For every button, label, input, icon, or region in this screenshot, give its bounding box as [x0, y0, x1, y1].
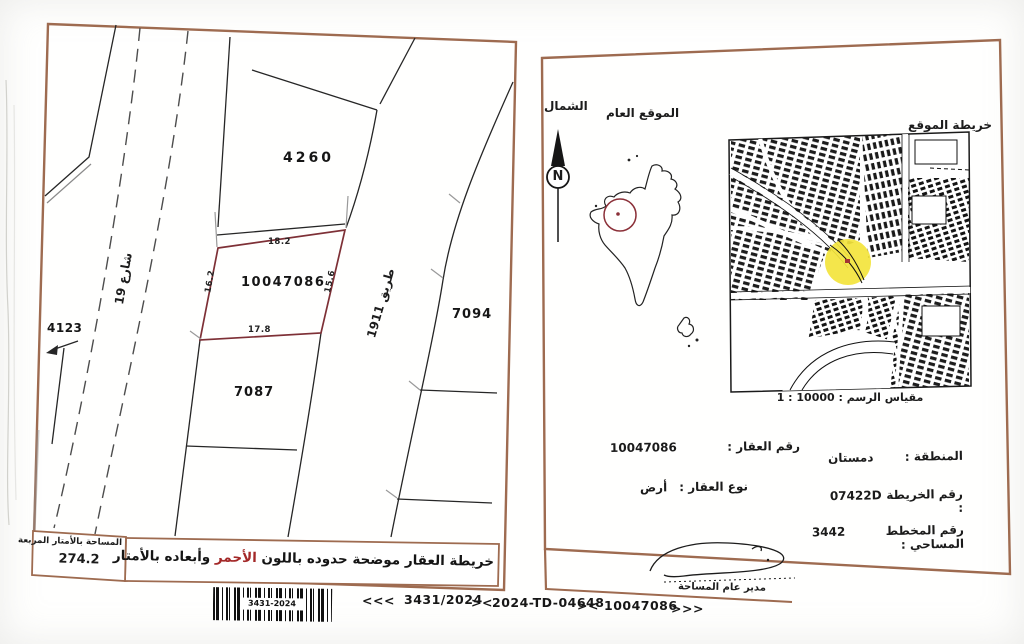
signature-title: مدير عام المساحة [662, 581, 782, 594]
parcel-label-4123: 4123 [47, 322, 82, 335]
area-box-value: 274.2 [36, 552, 122, 569]
north-arrow-icon [547, 129, 569, 242]
map-note-suffix: وأبعاده بالأمتار [113, 548, 211, 566]
bahrain-outline-map [590, 155, 698, 347]
plot-map-panel [32, 24, 516, 590]
map-number-row: رقم الخريطة : 07422D [830, 487, 963, 517]
footer-seg-sep-1: >< [471, 595, 493, 610]
map-number-label: رقم الخريطة : [881, 487, 963, 516]
region-value: دمستان [828, 450, 874, 465]
footer-seg-arrows-left: <<< [362, 593, 395, 608]
general-location-label: الموقع العام [606, 107, 679, 120]
site-map [729, 130, 971, 392]
parcel-4123-arrowhead [46, 345, 58, 355]
region-row: المنطقة : دمستان [828, 449, 963, 465]
map-number-value: 07422D [830, 488, 882, 517]
scale-label: مقياس الرسم : 10000 : 1 [762, 392, 938, 404]
parcel-label-7094: 7094 [452, 308, 492, 322]
property-number-value: 10047086 [610, 440, 677, 455]
compass-letter: N [548, 170, 568, 184]
location-marker-circle [604, 199, 636, 231]
property-type-label: نوع العقار : [679, 479, 748, 494]
scanned-survey-document: 4260 10047086 7094 7087 4123 شارع 19 طري… [0, 0, 1024, 644]
region-label: المنطقة : [905, 449, 963, 464]
barcode-label: 3431-2024 [240, 598, 304, 611]
dimension-bottom: 17.8 [248, 326, 271, 335]
property-number-label: رقم العقار : [727, 439, 800, 454]
plan-number-row: رقم المخطط المساحي : 3442 [812, 523, 964, 554]
scan-artifacts [6, 80, 16, 525]
north-label: الشمال [544, 100, 588, 113]
dimension-top: 18.2 [268, 238, 291, 247]
plan-number-label: رقم المخطط المساحي : [845, 523, 964, 553]
footer-seg-arrows-right: >>> [671, 601, 704, 616]
property-type-value: أرض [640, 480, 667, 494]
left-panel-border [33, 24, 516, 590]
map-note-red-word: الأحمر [215, 549, 257, 566]
property-number-row: رقم العقار : 10047086 [610, 439, 800, 455]
parcel-label-7087: 7087 [234, 386, 274, 400]
parcel-label-4260: 4260 [283, 151, 334, 166]
parcel-label-main: 10047086 [241, 276, 325, 290]
footer-seg-sep-2: >< [577, 598, 599, 613]
site-map-label: خريطة الموقع [908, 119, 992, 132]
plan-number-value: 3442 [812, 525, 846, 554]
footer-seg-property-number: 10047086 [604, 598, 678, 613]
property-type-row: نوع العقار : أرض [640, 479, 748, 494]
